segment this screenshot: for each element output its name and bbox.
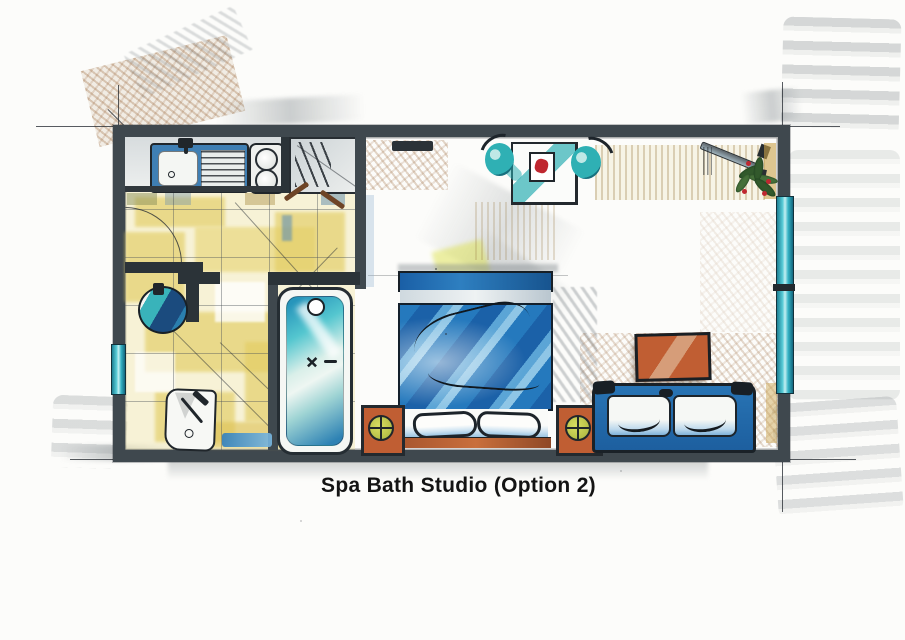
pillow-band xyxy=(403,409,548,439)
pillow xyxy=(477,411,542,439)
counter-front-edge xyxy=(125,186,288,192)
window-left xyxy=(111,344,126,395)
ink-speck xyxy=(435,268,437,270)
plant-berry xyxy=(766,179,771,184)
apartment-outline xyxy=(113,125,790,462)
pillow xyxy=(412,410,477,439)
smudge-right-middle xyxy=(788,150,900,400)
tub-handle-icon xyxy=(324,360,337,363)
sink-basin xyxy=(158,151,198,186)
tub-room-top-wall xyxy=(268,272,360,285)
separator-wall xyxy=(355,137,366,289)
flush-button xyxy=(184,429,193,438)
sink-drainboard xyxy=(201,150,245,188)
wall-tv-icon xyxy=(392,141,433,151)
bathroom-wall-stub xyxy=(178,272,220,284)
sofa-armrest xyxy=(593,380,616,395)
dining-chair-left xyxy=(485,143,514,176)
door-hatch-marks xyxy=(703,147,712,175)
cushion-swirl xyxy=(617,409,661,434)
bed-sheet-band xyxy=(400,290,551,303)
potted-plant xyxy=(732,149,780,204)
dining-chair-right xyxy=(571,146,601,179)
headboard xyxy=(401,437,551,448)
coffee-table xyxy=(634,332,711,382)
bed-foot-band xyxy=(398,271,553,292)
burner-icon xyxy=(255,148,278,171)
lamp-icon xyxy=(368,415,394,441)
cushion-swirl xyxy=(683,409,727,434)
smudge-top-right-stack xyxy=(780,16,901,137)
blue-accent-dab xyxy=(282,215,292,241)
wall-shadow-strip xyxy=(366,195,374,287)
window-right xyxy=(776,196,794,394)
table-centerpiece xyxy=(529,152,555,182)
bathroom-faucet-icon xyxy=(153,283,164,295)
smudge-right-lower xyxy=(771,396,904,519)
sofa-cushion xyxy=(607,395,671,437)
toilet xyxy=(164,388,217,452)
lamp-icon xyxy=(565,415,591,441)
plant-berry xyxy=(746,161,751,166)
bathtub xyxy=(277,287,353,455)
bath-mat xyxy=(222,433,272,447)
plant-berry xyxy=(742,189,747,194)
ink-speck xyxy=(445,333,447,335)
window-latch-icon xyxy=(773,284,795,291)
nightstand-left xyxy=(361,405,405,456)
bed-side-shadow xyxy=(553,287,597,402)
sofa-armrest xyxy=(731,381,754,395)
tub-drain-icon xyxy=(307,298,325,316)
ink-speck xyxy=(300,520,302,522)
plan-title: Spa Bath Studio (Option 2) xyxy=(6,474,905,498)
ink-speck xyxy=(620,470,622,472)
red-flower-icon xyxy=(533,158,549,175)
right-wall-hatch xyxy=(700,212,778,332)
sink-partition-wall xyxy=(186,277,199,322)
sofa xyxy=(592,383,756,453)
floor-plan-sketch: Spa Bath Studio (Option 2) xyxy=(0,0,905,640)
faucet-spout xyxy=(184,144,188,154)
sofa-mid-mark xyxy=(659,389,673,397)
sofa-cushion xyxy=(673,395,737,437)
dining-shadow-hatch xyxy=(475,202,555,260)
plant-berry xyxy=(762,191,767,196)
sink-drain-dot xyxy=(168,171,175,178)
double-bed xyxy=(398,271,553,447)
